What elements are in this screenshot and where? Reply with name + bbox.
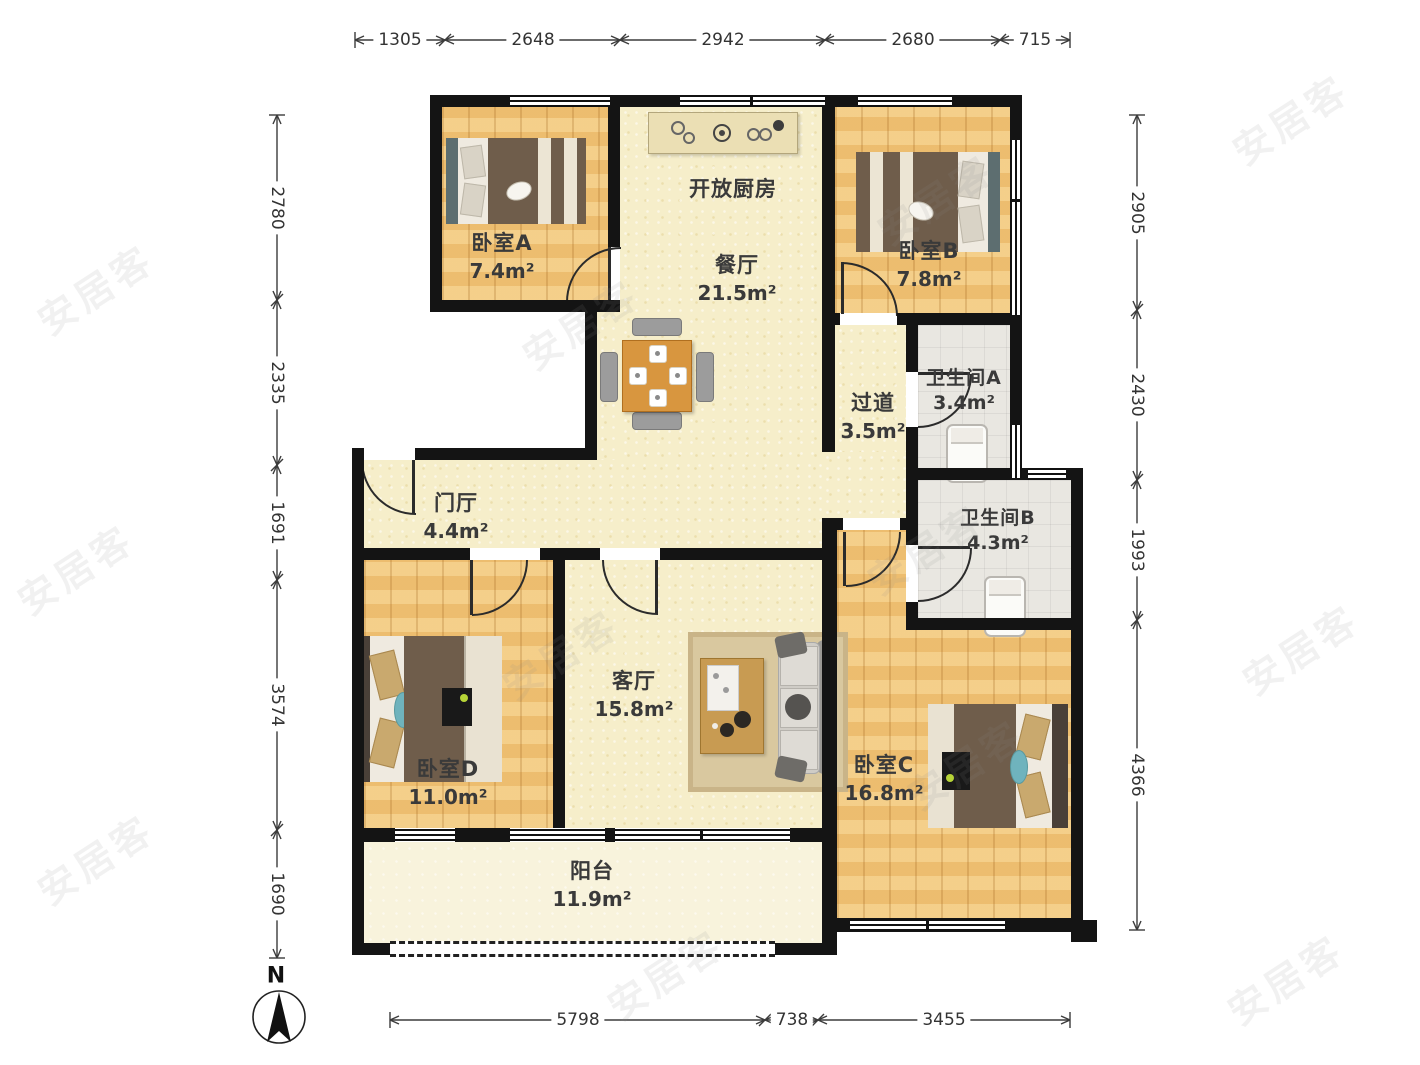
- sink-icon: [759, 128, 772, 141]
- wall: [906, 618, 1083, 630]
- window: [395, 829, 455, 841]
- label-bedroom-b: 卧室B7.8m²: [896, 238, 961, 292]
- bed-icon: [928, 704, 1068, 828]
- label-corridor: 过道3.5m²: [840, 390, 905, 444]
- window: [1010, 140, 1022, 315]
- wall: [906, 325, 918, 372]
- door-leaf: [843, 532, 846, 586]
- label-bedroom-a: 卧室A7.4m²: [469, 230, 534, 284]
- wall: [553, 560, 565, 828]
- window: [1010, 425, 1022, 478]
- balcony-railing: [390, 941, 775, 957]
- dim-right-1: 2905: [1127, 186, 1147, 239]
- dim-left-5: 1690: [267, 867, 287, 920]
- wall: [352, 943, 390, 955]
- dining-chair-icon: [632, 412, 682, 430]
- dim-top-4: 2680: [886, 30, 939, 50]
- watermark: 安居客: [1230, 589, 1368, 705]
- floorplan-canvas: 卧室A7.4m² 开放厨房 餐厅21.5m² 卧室B7.8m² 过道3.5m² …: [0, 0, 1420, 1065]
- wall: [1071, 468, 1083, 942]
- label-bedroom-c: 卧室C16.8m²: [845, 752, 924, 806]
- dim-top-3: 2942: [696, 30, 749, 50]
- wall: [822, 95, 835, 452]
- dim-left-3: 1691: [267, 496, 287, 549]
- bed-icon: [856, 152, 1000, 252]
- wall: [660, 548, 822, 560]
- wall: [900, 518, 918, 530]
- wall: [775, 943, 837, 955]
- label-dining: 餐厅21.5m²: [698, 252, 777, 306]
- wall: [1083, 920, 1097, 942]
- watermark: 安居客: [25, 799, 163, 915]
- wall: [352, 828, 395, 842]
- dim-bottom-1: 5798: [551, 1010, 604, 1030]
- faucet-icon: [683, 132, 695, 144]
- wall: [352, 448, 364, 955]
- wall: [790, 828, 837, 842]
- dining-chair-icon: [696, 352, 714, 402]
- window-mullion: [700, 830, 703, 840]
- dim-top-5: 715: [1014, 30, 1056, 50]
- bed-icon: [446, 138, 586, 224]
- wall: [822, 518, 837, 955]
- dim-left-1: 2780: [267, 181, 287, 234]
- wall: [585, 300, 597, 460]
- coffee-table-icon: [700, 658, 764, 754]
- door-leaf: [608, 247, 611, 301]
- north-compass-icon: [250, 988, 308, 1046]
- wall: [906, 480, 918, 545]
- north-label: N: [267, 964, 285, 989]
- dim-left-4: 3574: [267, 678, 287, 731]
- wall: [455, 828, 510, 842]
- dim-top-1: 1305: [373, 30, 426, 50]
- wall: [430, 95, 442, 312]
- label-bathroom-b: 卫生间B4.3m²: [960, 506, 1035, 556]
- wall: [352, 548, 470, 560]
- door-leaf: [412, 460, 415, 514]
- door-leaf: [470, 560, 473, 615]
- watermark: 安居客: [5, 509, 143, 625]
- dim-bottom-3: 3455: [917, 1010, 970, 1030]
- dim-bottom-2: 738: [771, 1010, 813, 1030]
- room-corridor-floor: [822, 452, 906, 518]
- wall: [540, 548, 600, 560]
- dim-right-3: 1993: [1127, 523, 1147, 576]
- wall: [415, 448, 597, 460]
- window: [510, 829, 605, 841]
- label-living: 客厅15.8m²: [595, 668, 674, 722]
- label-bedroom-d: 卧室D11.0m²: [409, 756, 488, 810]
- faucet-icon: [671, 121, 685, 135]
- window-mullion: [750, 96, 753, 106]
- wall: [608, 95, 620, 247]
- dim-right-4: 4366: [1127, 748, 1147, 801]
- dining-chair-icon: [600, 352, 618, 402]
- sink-icon: [773, 120, 784, 131]
- window-mullion: [1011, 199, 1021, 202]
- stove-burner-icon: [719, 130, 725, 136]
- label-hall: 门厅4.4m²: [423, 490, 488, 544]
- kitchen-counter-icon: [648, 112, 798, 154]
- watermark: 安居客: [25, 229, 163, 345]
- dim-top-2: 2648: [506, 30, 559, 50]
- door-leaf: [841, 262, 844, 314]
- dim-left-2: 2335: [267, 356, 287, 409]
- window: [1028, 468, 1066, 480]
- door-leaf: [655, 560, 658, 614]
- watermark: 安居客: [1215, 919, 1353, 1035]
- dining-chair-icon: [632, 318, 682, 336]
- wall: [822, 313, 840, 325]
- window: [510, 95, 610, 107]
- label-bathroom-a: 卫生间A3.4m²: [926, 366, 1002, 416]
- label-kitchen: 开放厨房: [689, 176, 777, 204]
- wall: [897, 313, 1022, 325]
- window-mullion: [926, 920, 929, 930]
- window: [858, 95, 952, 107]
- watermark: 安居客: [1220, 59, 1358, 175]
- wall: [605, 828, 615, 842]
- dining-table-icon: [622, 340, 692, 412]
- label-balcony: 阳台11.9m²: [553, 858, 632, 912]
- dim-right-2: 2430: [1127, 368, 1147, 421]
